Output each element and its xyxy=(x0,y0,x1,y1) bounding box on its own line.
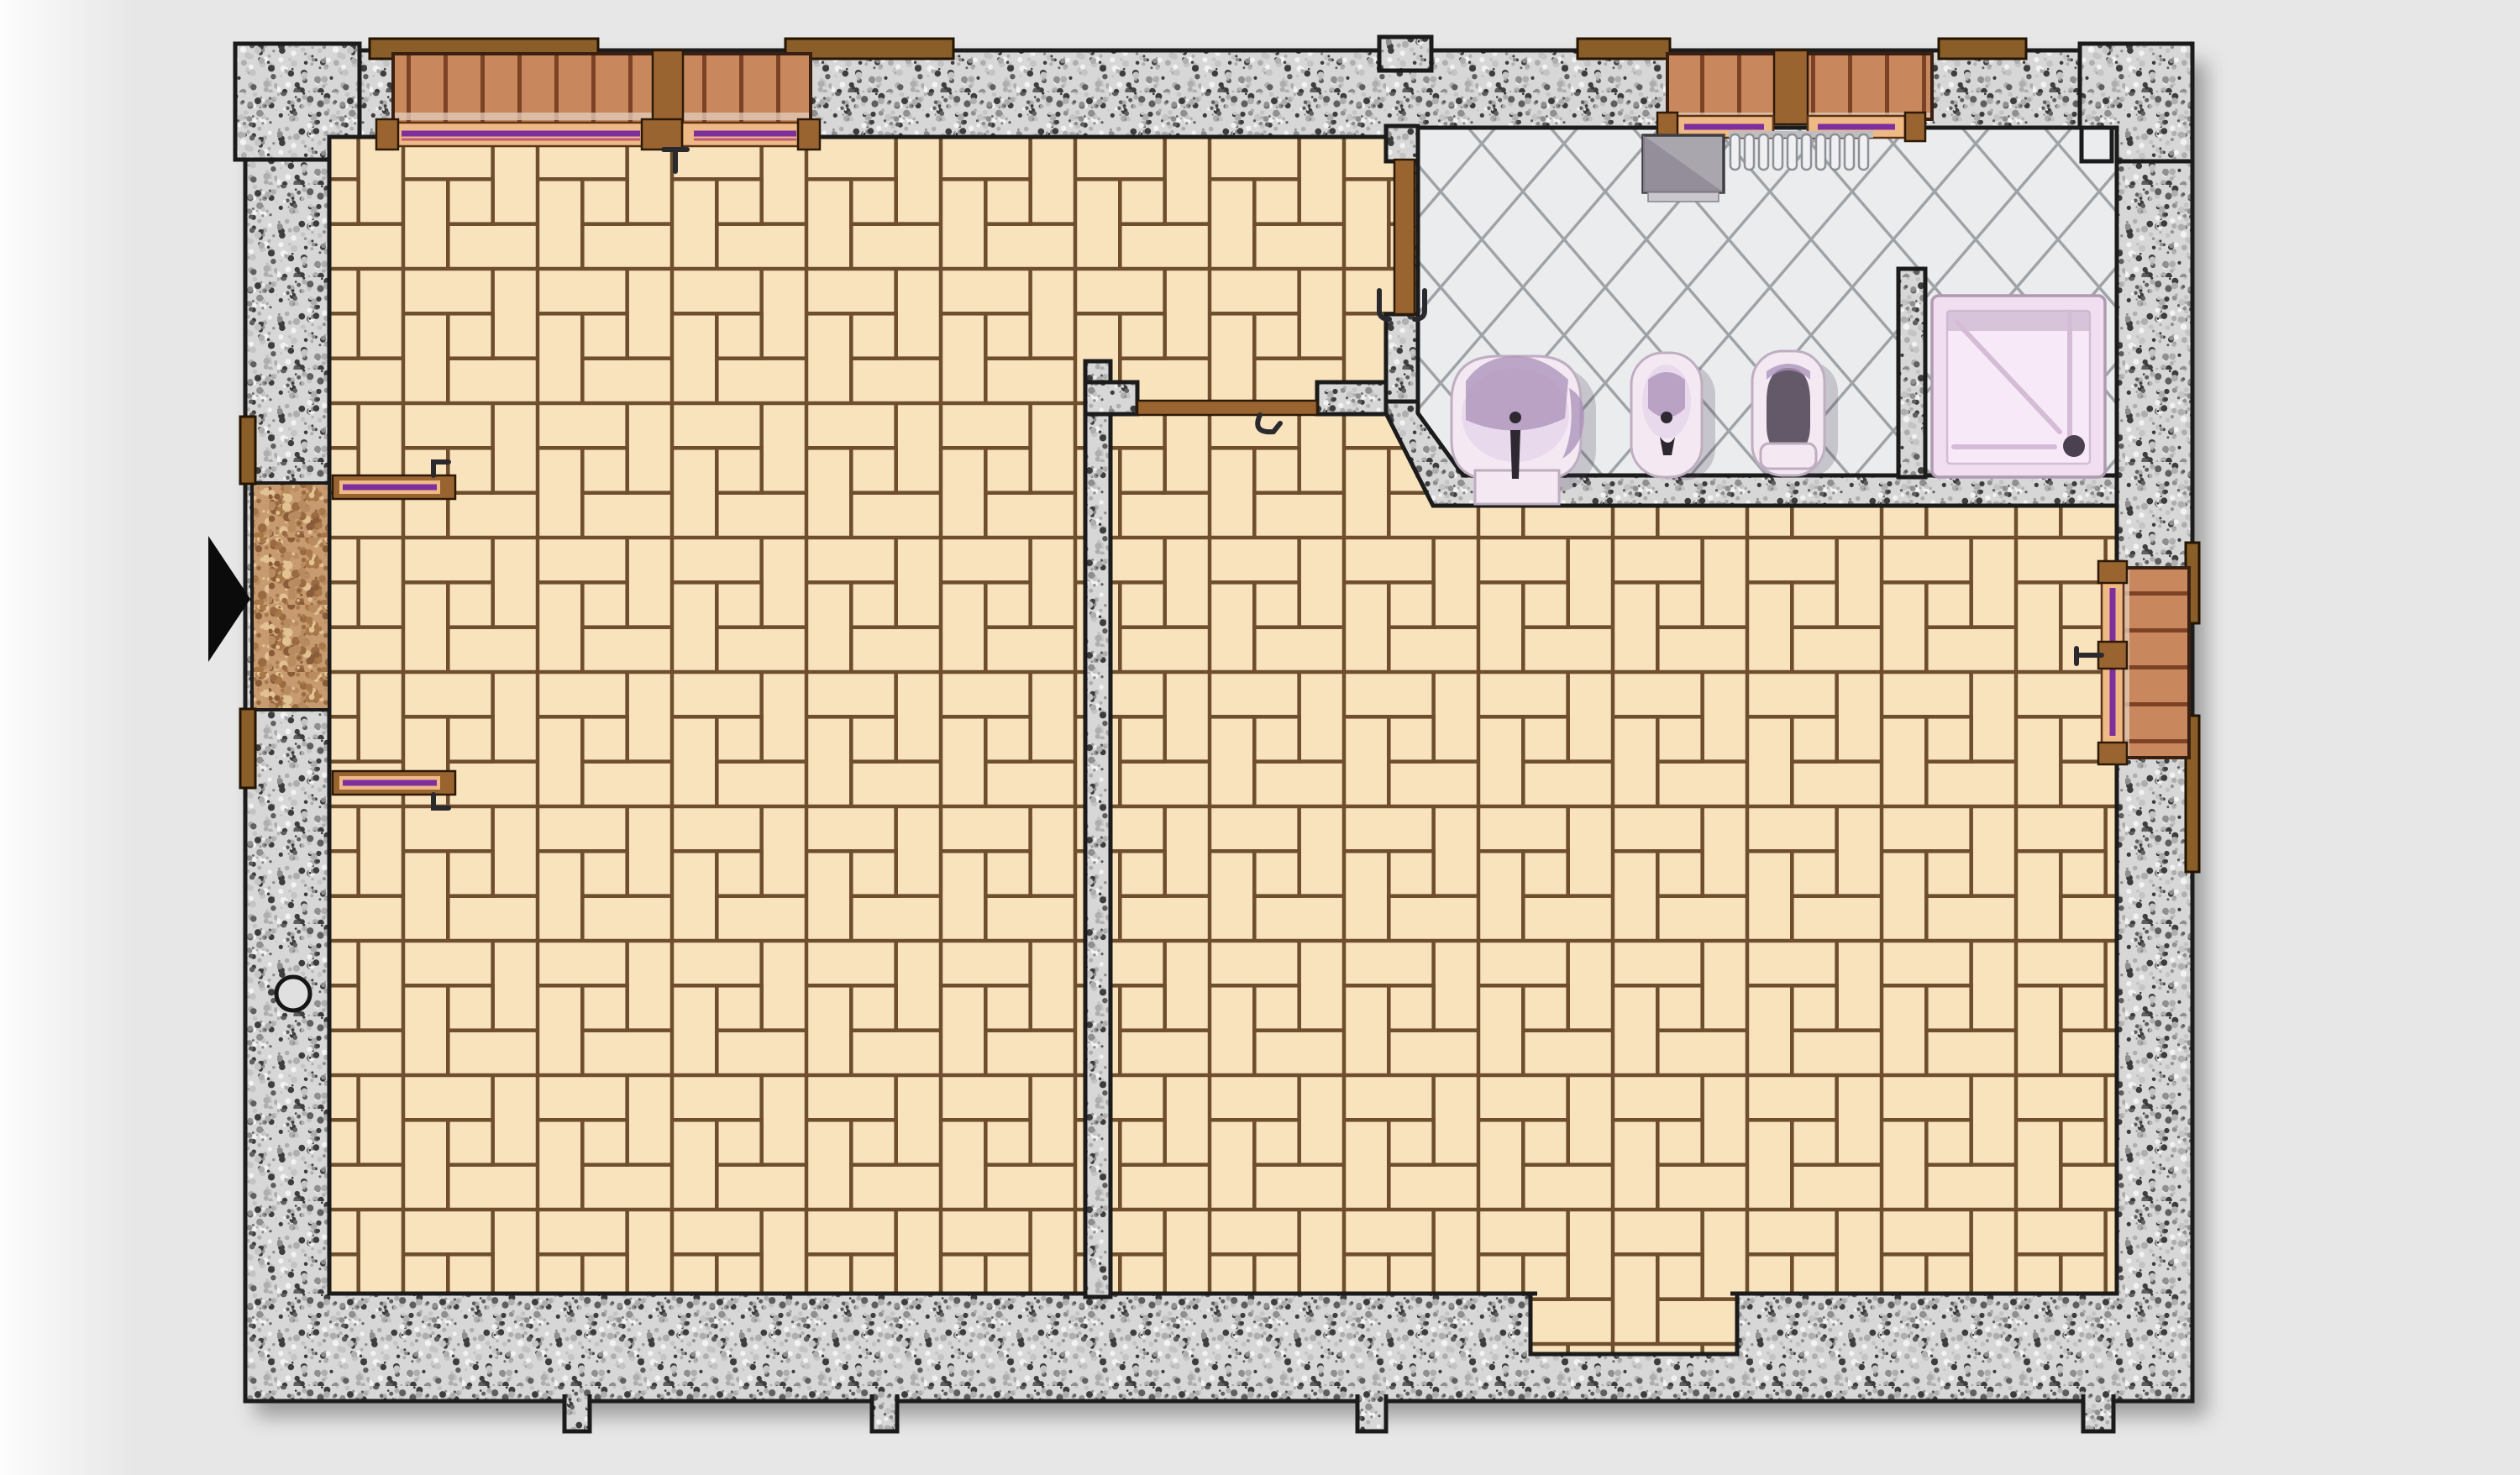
window-lintel xyxy=(1578,39,1670,59)
wall-niche-square xyxy=(2082,128,2112,161)
radiator xyxy=(1729,131,1873,170)
window-masonry xyxy=(393,54,811,126)
window-lintel xyxy=(1939,39,2026,59)
floor-notch-seam xyxy=(1537,1287,1730,1299)
shower-partition-wall xyxy=(1898,269,1925,477)
bidet xyxy=(1631,353,1715,480)
bathroom-west-wall-upper xyxy=(1386,126,1418,161)
door-lintel xyxy=(240,709,255,788)
toilet xyxy=(1752,351,1838,477)
shower-drain xyxy=(2063,435,2085,457)
floor-plan-drawing xyxy=(0,0,2520,1475)
floor-plan-canvas xyxy=(0,0,2520,1475)
door-lintel xyxy=(240,417,255,484)
wall-circle-duct xyxy=(276,977,310,1010)
bottom-wall-fill xyxy=(252,1310,2184,1394)
bathroom-west-wall-lower xyxy=(1386,314,1418,407)
partition-wall-endcap xyxy=(1085,382,1137,414)
window-mullion xyxy=(1774,50,1808,124)
partition-wall-central xyxy=(1085,361,1110,1297)
floor-notch xyxy=(1530,1294,1737,1354)
duct-box xyxy=(1643,135,1724,202)
window-masonry xyxy=(2122,568,2189,758)
entrance-threshold xyxy=(252,483,329,710)
top-wall-tab xyxy=(1379,37,1431,71)
shower-tray xyxy=(1932,296,2105,477)
room-right-floor xyxy=(1110,412,2117,1294)
